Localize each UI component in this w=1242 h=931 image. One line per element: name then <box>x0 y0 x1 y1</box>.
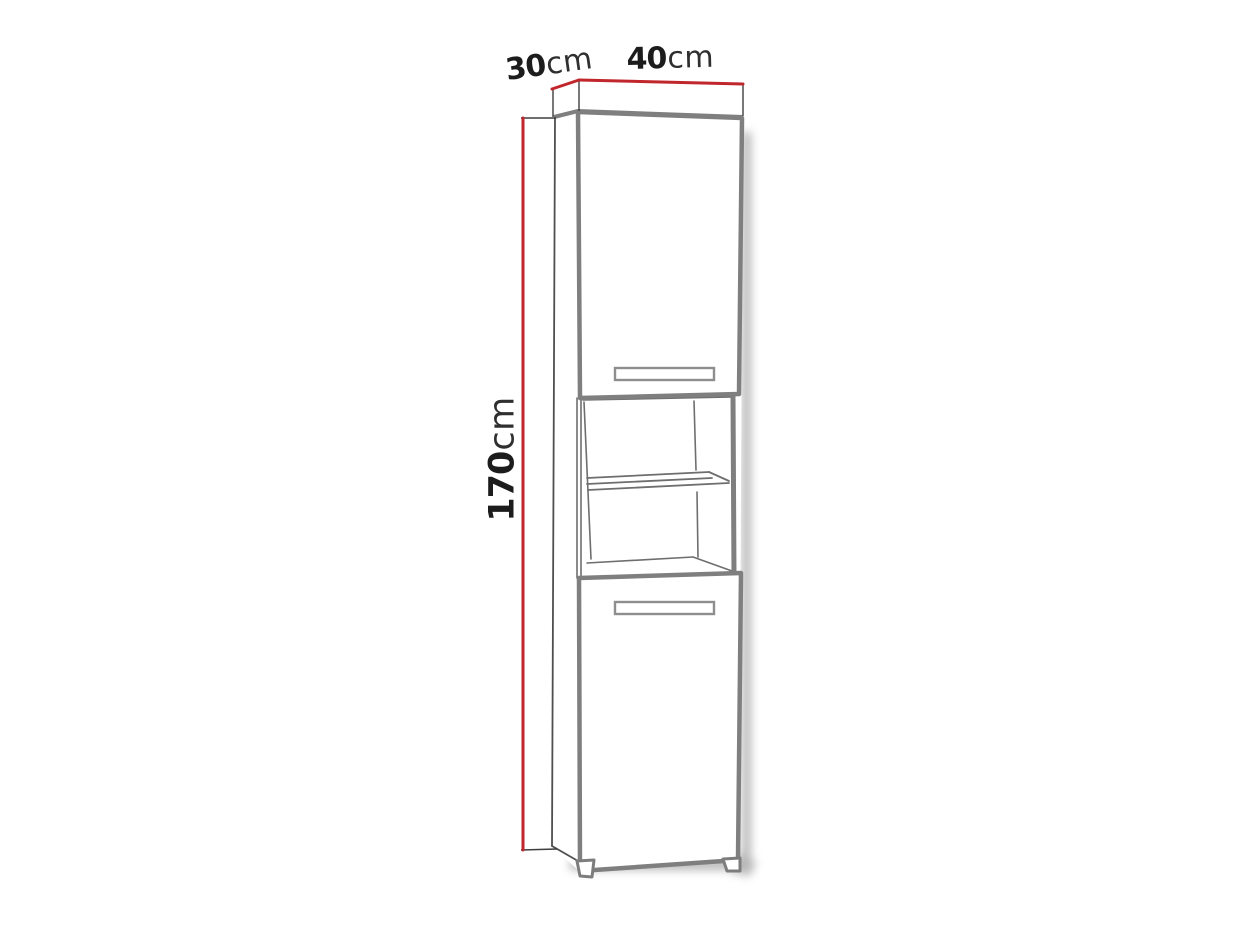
depth-value: 30 <box>503 48 547 88</box>
width-value: 40 <box>626 41 667 77</box>
depth-dimension-line <box>552 80 579 89</box>
right-foot <box>723 858 740 871</box>
carcass-right-edge <box>733 396 734 576</box>
diagram-canvas: 30cm 40cm 170cm <box>0 0 1242 931</box>
width-dimension-line <box>579 80 743 84</box>
bottom-door-handle <box>615 602 714 614</box>
height-value: 170 <box>483 452 523 522</box>
width-dimension-label: 40cm <box>626 43 714 75</box>
cabinet-line-drawing <box>0 0 1242 931</box>
top-door <box>578 112 742 398</box>
left-foot <box>577 860 594 877</box>
width-unit: cm <box>667 40 715 76</box>
height-dimension-label: 170cm <box>486 396 521 521</box>
height-unit: cm <box>483 396 523 450</box>
top-door-handle <box>615 368 714 380</box>
bottom-door <box>579 573 741 871</box>
depth-unit: cm <box>544 41 595 82</box>
